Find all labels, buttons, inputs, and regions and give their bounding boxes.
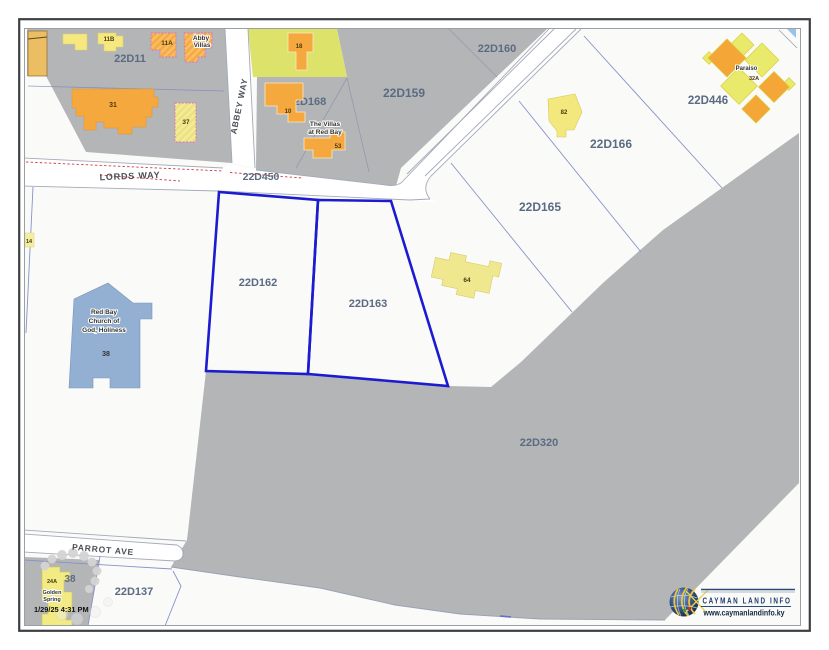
svg-text:24A: 24A [47, 579, 57, 585]
svg-text:God, Holiness: God, Holiness [82, 327, 126, 334]
svg-text:22D163: 22D163 [349, 298, 388, 310]
svg-text:32A: 32A [749, 76, 759, 82]
svg-text:Church of: Church of [89, 318, 121, 325]
svg-text:38: 38 [64, 574, 76, 585]
svg-text:22D137: 22D137 [115, 586, 154, 598]
svg-text:Spring: Spring [43, 597, 60, 603]
svg-text:22D450: 22D450 [243, 171, 280, 183]
svg-text:14: 14 [26, 239, 33, 245]
svg-text:CAYMAN LAND INFO: CAYMAN LAND INFO [703, 597, 792, 606]
svg-text:www.caymanlandinfo.ky: www.caymanlandinfo.ky [703, 609, 785, 618]
svg-text:Abby: Abby [193, 35, 210, 42]
svg-text:38: 38 [102, 351, 110, 358]
svg-text:22D446: 22D446 [688, 95, 728, 107]
svg-text:82: 82 [561, 110, 568, 116]
svg-text:22D165: 22D165 [519, 200, 561, 214]
svg-text:The Villas: The Villas [310, 121, 341, 128]
svg-text:Golden: Golden [43, 590, 63, 596]
svg-text:64: 64 [463, 277, 471, 284]
svg-text:37: 37 [182, 119, 190, 126]
svg-text:22D166: 22D166 [590, 137, 632, 151]
svg-text:22D160: 22D160 [478, 43, 517, 55]
svg-text:11A: 11A [161, 40, 173, 47]
svg-text:Red Bay: Red Bay [91, 309, 117, 316]
svg-text:22D159: 22D159 [383, 86, 425, 100]
svg-text:22D320: 22D320 [520, 437, 559, 449]
svg-text:22D11: 22D11 [114, 53, 146, 65]
svg-text:Villas: Villas [194, 42, 211, 49]
svg-text:22D162: 22D162 [239, 277, 278, 289]
svg-text:1/29/25 4:31 PM: 1/29/25 4:31 PM [34, 605, 89, 614]
svg-text:at Red Bay: at Red Bay [308, 129, 342, 136]
svg-text:31: 31 [109, 102, 117, 109]
svg-text:53: 53 [335, 144, 342, 150]
svg-text:18: 18 [296, 44, 303, 50]
svg-text:11B: 11B [104, 37, 115, 43]
svg-text:Paraiso: Paraiso [736, 66, 758, 72]
svg-text:10: 10 [285, 109, 292, 115]
